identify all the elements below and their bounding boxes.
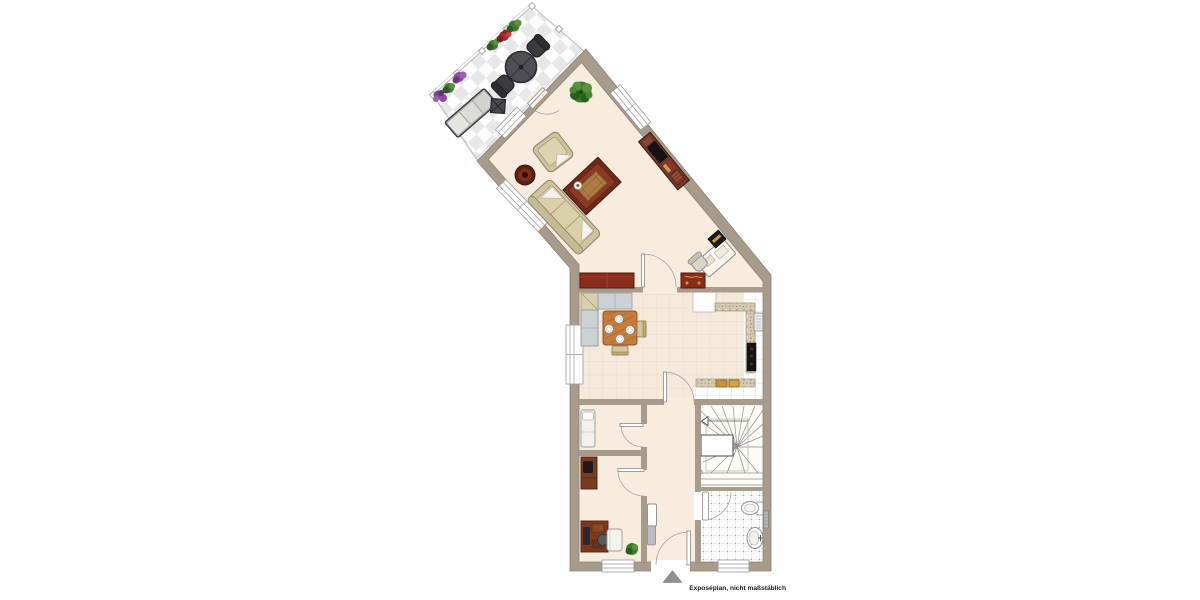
svg-text:Exposéplan, nicht maßstäblich: Exposéplan, nicht maßstäblich — [689, 585, 786, 592]
